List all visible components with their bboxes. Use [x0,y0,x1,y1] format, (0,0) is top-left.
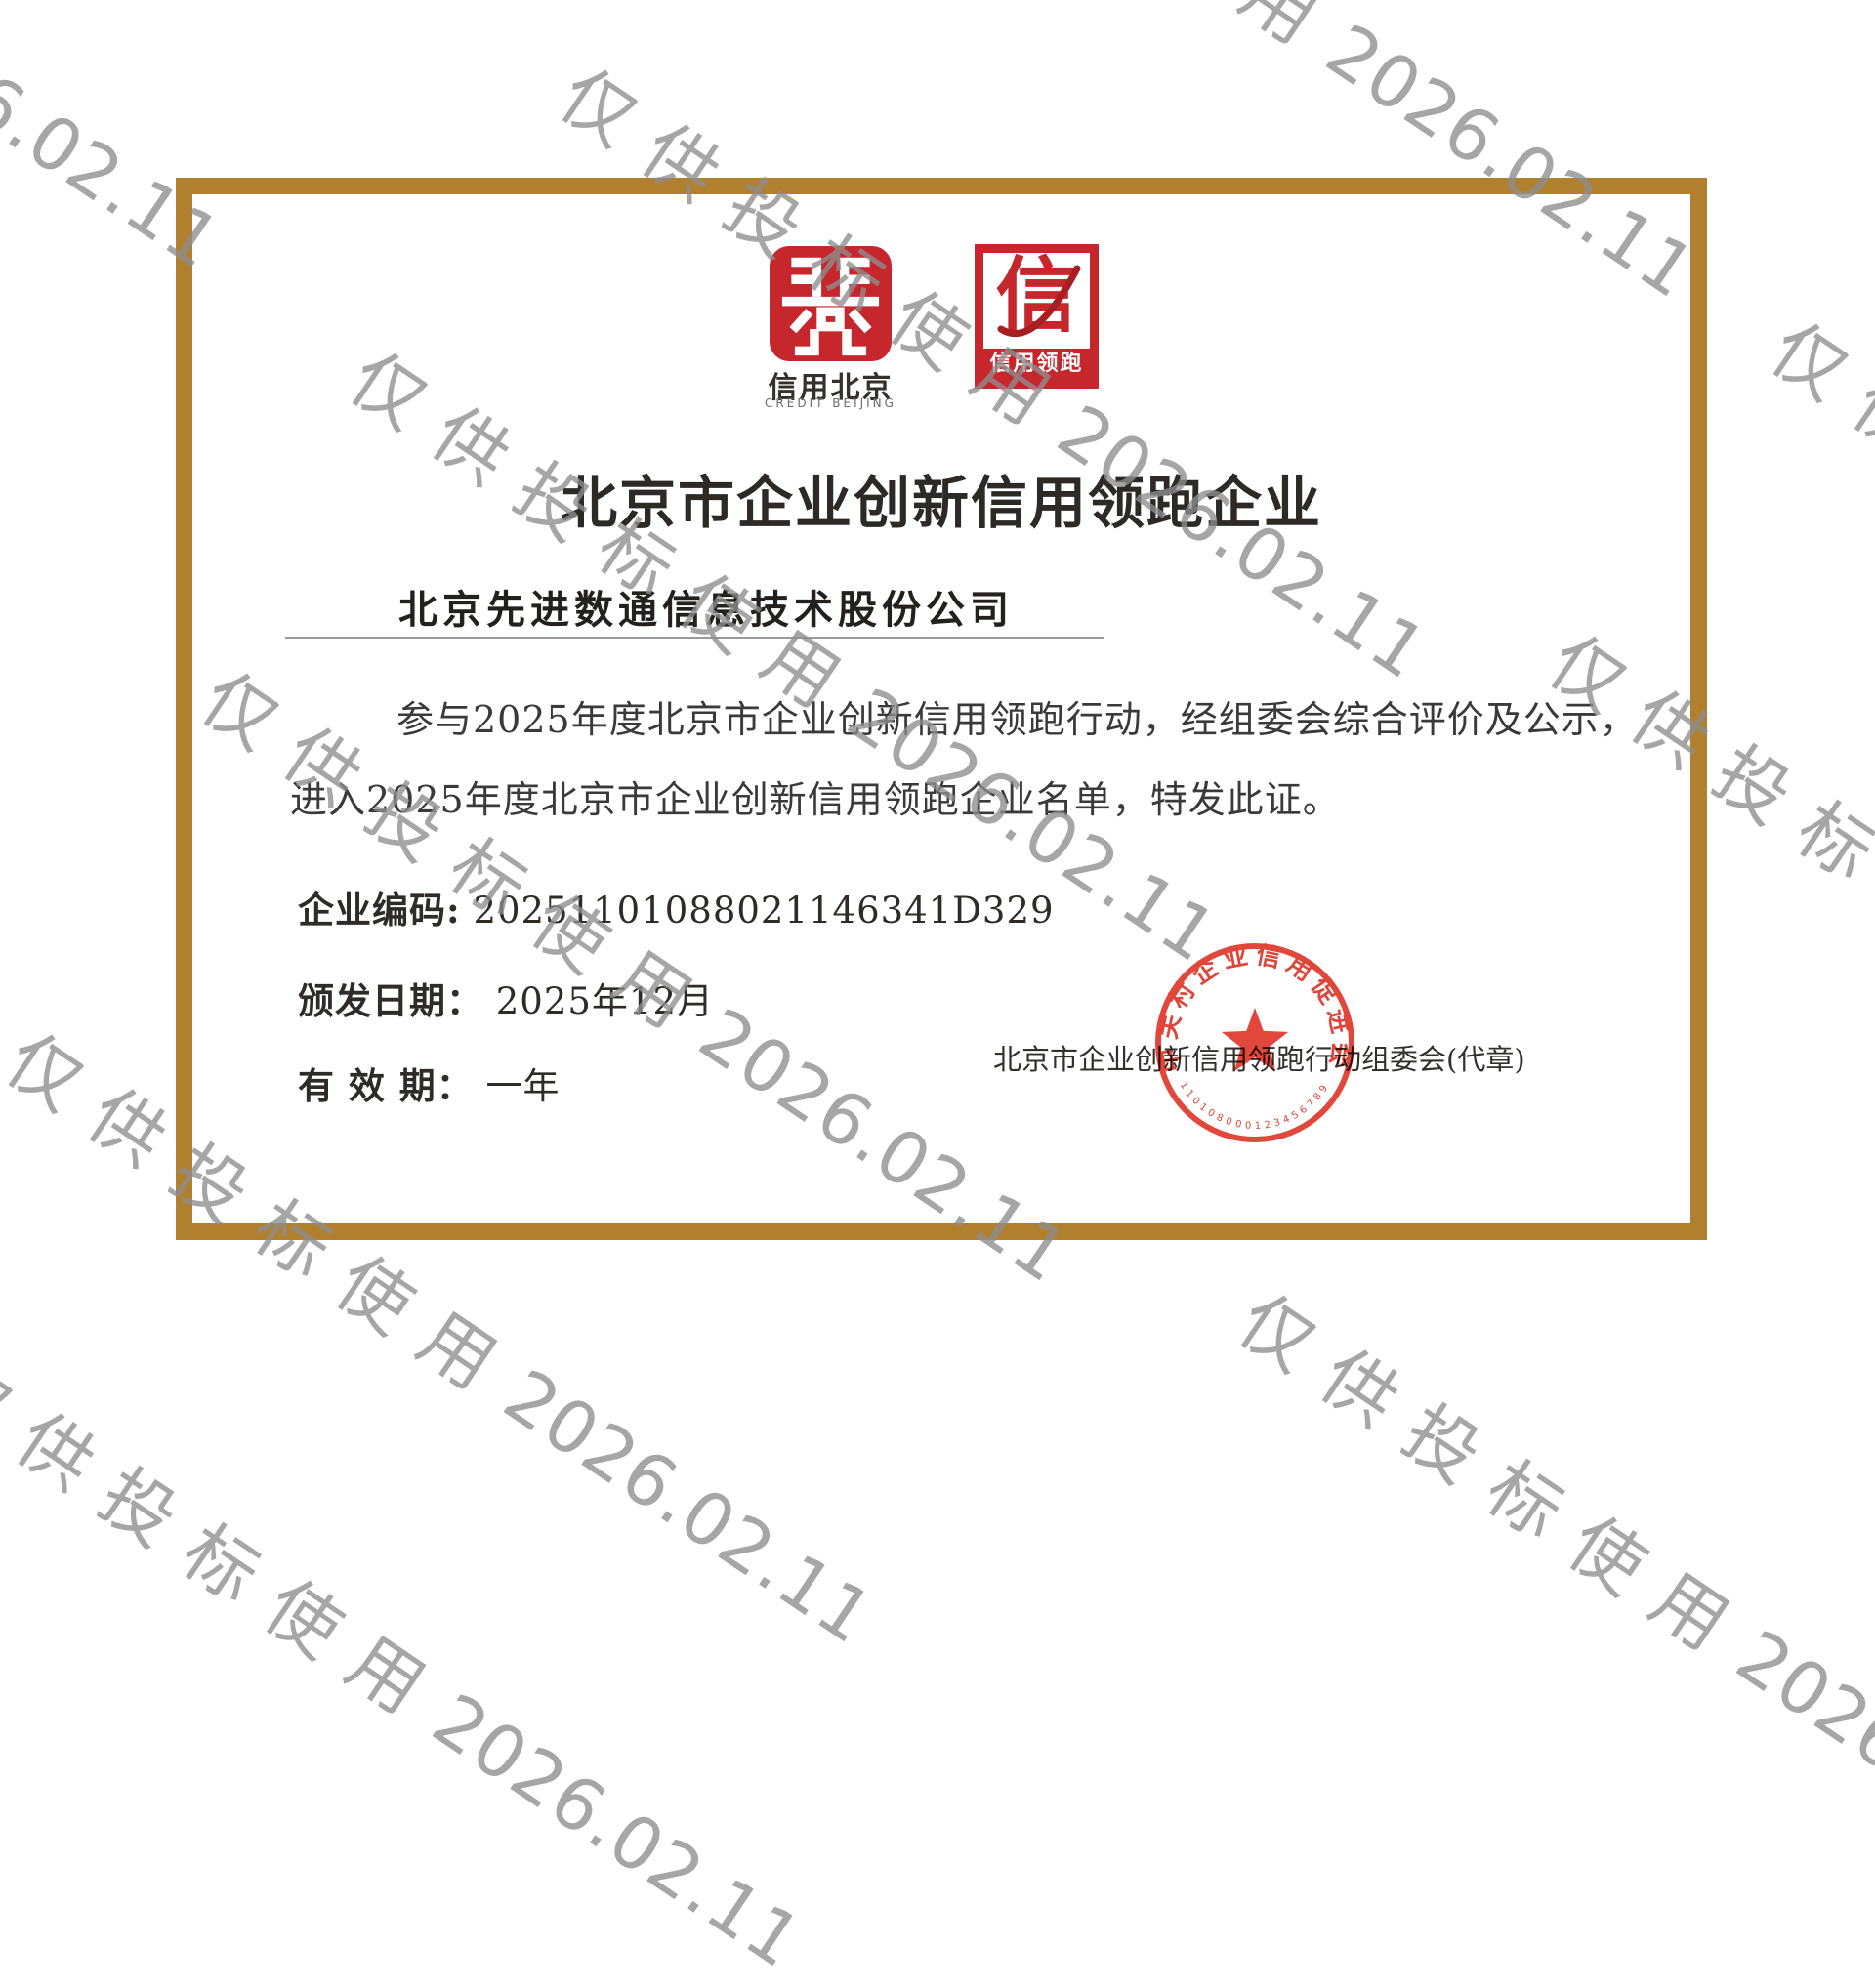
certificate-title: 北京市企业创新信用领跑企业 [176,457,1707,539]
company-underline [285,637,1104,639]
certificate-page: { "watermark": { "text_cjk": "仅供投标使用", "… [0,0,1875,1408]
company-name: 北京先进数通信息技术股份公司 [398,578,1014,635]
credit-beijing-label-en: CREDIT BEIJING [745,396,916,410]
enterprise-code-label: 企业编码: [298,889,461,932]
validity-label: 有 效 期： [298,1064,474,1107]
credit-leader-band-label: 信用领跑 [983,349,1090,380]
credit-leader-logo: 信 信用领跑 [975,244,1099,389]
watermark-text: 仅供投标使用2026.02.11 [0,1328,825,1988]
body-text-line2: 进入2025年度北京市企业创新信用领跑企业名单，特发此证。 [290,769,1341,823]
validity-row: 有 效 期： 一年 [298,1056,561,1109]
credit-beijing-monogram-icon [770,246,892,361]
watermark-text: 仅供投标使用2026.02.11 [1753,293,1875,953]
issue-date-value: 2025年12月 [496,980,714,1022]
seal-star-icon [1222,1008,1288,1071]
credit-beijing-logo [770,246,892,361]
watermark-text: 仅供投标使用2026.02.11 [1221,1264,1875,1925]
issue-date-row: 颁发日期： 2025年12月 [298,972,714,1024]
official-seal: 中关村企业信用促进会 110108000123456789 [1147,935,1362,1150]
enterprise-code-row: 企业编码: 20251101088021146341D329 [298,881,1055,933]
validity-value: 一年 [486,1065,561,1107]
enterprise-code-value: 20251101088021146341D329 [473,890,1054,932]
body-text-line1: 参与2025年度北京市企业创新信用领跑行动，经组委会综合评价及公示， [396,689,1638,743]
issue-date-label: 颁发日期： [298,979,483,1022]
